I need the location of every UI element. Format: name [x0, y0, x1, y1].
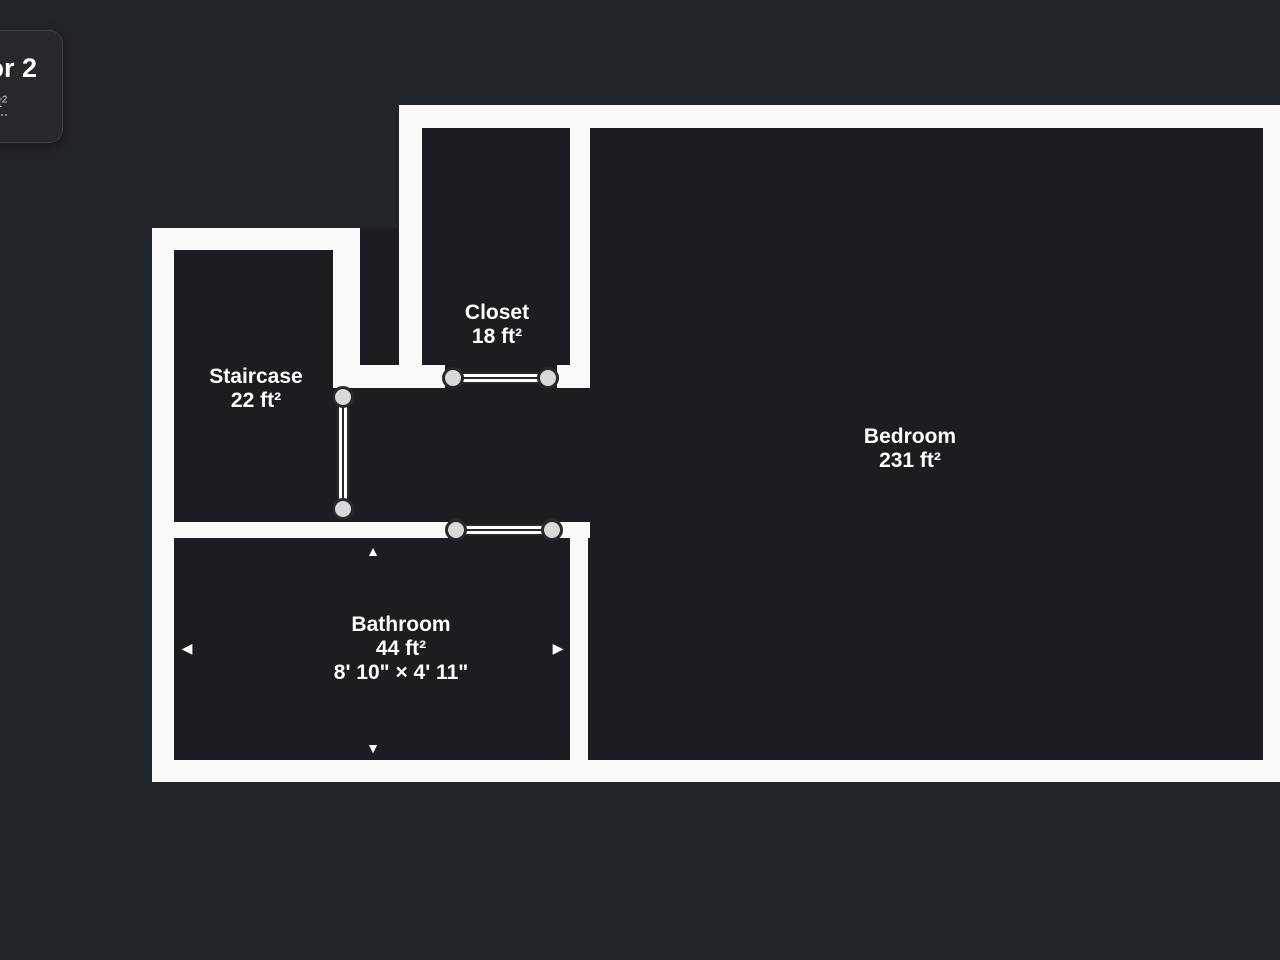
wall-closet-right: [570, 105, 590, 388]
wall-bathroom-divider: [570, 522, 588, 760]
floor-selector-card[interactable]: Floor 2 ft²: [0, 30, 63, 143]
wall-staircase-right: [333, 228, 360, 388]
door-handle-icon: [442, 367, 464, 389]
wall-right: [1263, 105, 1280, 782]
room-name: Bathroom: [334, 613, 468, 637]
door-leaf: [456, 524, 552, 536]
wall-left: [152, 228, 174, 782]
room-area: 22 ft²: [209, 389, 302, 413]
door-leaf: [337, 397, 349, 509]
room-name: Staircase: [209, 365, 302, 389]
wall-bathroom-top: [174, 522, 448, 538]
room-area: 231 ft²: [864, 449, 956, 473]
door-handle-icon: [332, 498, 354, 520]
room-name: Closet: [465, 301, 529, 325]
resize-handle-left-icon[interactable]: ◀: [182, 641, 193, 655]
resize-handle-down-icon[interactable]: ▼: [366, 741, 380, 755]
room-dimensions: 8' 10" × 4' 11": [334, 661, 468, 685]
wall-top: [399, 105, 1280, 128]
wall-staircase-top: [152, 228, 360, 250]
closet-label: Closet 18 ft²: [465, 301, 529, 349]
resize-handle-right-icon[interactable]: ▶: [553, 641, 564, 655]
wall-bottom: [152, 760, 1280, 782]
room-name: Bedroom: [864, 425, 956, 449]
door-handle-icon: [537, 367, 559, 389]
staircase-label: Staircase 22 ft²: [209, 365, 302, 413]
door-handle-icon: [445, 519, 467, 541]
wall-closet-left: [399, 105, 422, 388]
bedroom-label: Bedroom 231 ft²: [864, 425, 956, 473]
room-area: 44 ft²: [334, 637, 468, 661]
resize-handle-up-icon[interactable]: ▲: [366, 544, 380, 558]
room-area: 18 ft²: [465, 325, 529, 349]
bathroom-label: Bathroom 44 ft² 8' 10" × 4' 11": [334, 613, 468, 685]
floor-plan-canvas[interactable]: Closet 18 ft² Staircase 22 ft² Bedroom 2…: [0, 0, 1280, 960]
floor-area-label: ft²: [0, 94, 7, 116]
door-leaf: [453, 372, 548, 384]
wall-closet-bottom-right: [557, 365, 590, 388]
floor-title: Floor 2: [0, 53, 62, 84]
door-handle-icon: [332, 386, 354, 408]
door-handle-icon: [541, 519, 563, 541]
